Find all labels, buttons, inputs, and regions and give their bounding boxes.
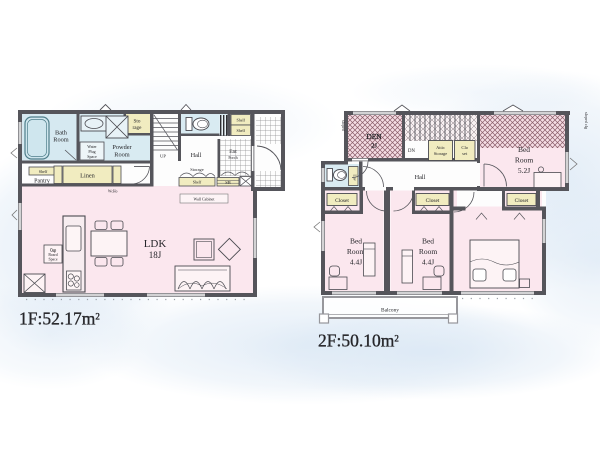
svg-text:2F:50.10m2: 2F:50.10m2 bbox=[318, 331, 399, 351]
svg-text:Shelf: Shelf bbox=[193, 180, 202, 185]
svg-text:Room: Room bbox=[114, 152, 129, 159]
svg-text:sloped clg: sloped clg bbox=[584, 112, 589, 130]
svg-text:Room: Room bbox=[515, 156, 534, 165]
svg-text:rage: rage bbox=[133, 125, 143, 131]
svg-text:Linen: Linen bbox=[80, 173, 96, 180]
svg-text:2J: 2J bbox=[371, 143, 377, 150]
svg-text:Wall Cabinet: Wall Cabinet bbox=[194, 197, 216, 202]
svg-text:SB: SB bbox=[225, 180, 231, 185]
svg-text:Clo: Clo bbox=[461, 145, 468, 150]
svg-text:UP: UP bbox=[160, 154, 166, 159]
svg-text:Bed: Bed bbox=[518, 145, 530, 154]
svg-text:Porch: Porch bbox=[228, 155, 237, 160]
svg-text:DEN: DEN bbox=[366, 132, 382, 141]
svg-text:Room: Room bbox=[53, 137, 68, 144]
svg-text:WcHo: WcHo bbox=[108, 190, 118, 194]
svg-text:Cup: Cup bbox=[50, 249, 56, 253]
svg-text:Room: Room bbox=[347, 247, 366, 256]
svg-text:Hall: Hall bbox=[191, 152, 202, 159]
svg-text:Pantry: Pantry bbox=[34, 179, 50, 185]
svg-text:Powder: Powder bbox=[112, 144, 132, 151]
svg-text:Closet: Closet bbox=[426, 198, 440, 204]
svg-text:4.4J: 4.4J bbox=[422, 258, 434, 267]
svg-text:Bed: Bed bbox=[422, 237, 434, 246]
svg-text:Closet: Closet bbox=[335, 198, 349, 204]
svg-text:Hall: Hall bbox=[415, 174, 426, 181]
svg-text:Room: Room bbox=[419, 247, 438, 256]
svg-text:Bed: Bed bbox=[350, 237, 362, 246]
svg-text:DN: DN bbox=[408, 149, 415, 154]
svg-text:Board: Board bbox=[48, 253, 57, 257]
svg-text:Attic: Attic bbox=[436, 145, 445, 150]
svg-text:Sto: Sto bbox=[134, 119, 141, 125]
svg-text:sloped: sloped bbox=[341, 120, 346, 132]
svg-text:Shelf: Shelf bbox=[236, 118, 245, 123]
svg-text:Balcony: Balcony bbox=[381, 308, 399, 314]
svg-text:4.4J: 4.4J bbox=[350, 258, 362, 267]
svg-text:Shelf: Shelf bbox=[236, 128, 245, 133]
svg-text:Shelf: Shelf bbox=[39, 169, 48, 174]
svg-text:Space: Space bbox=[48, 258, 57, 262]
svg-text:Closet: Closet bbox=[515, 198, 529, 204]
svg-text:1F:52.17m2: 1F:52.17m2 bbox=[19, 309, 100, 329]
svg-text:set: set bbox=[462, 151, 468, 156]
svg-text:18J: 18J bbox=[149, 250, 162, 260]
svg-text:Storage: Storage bbox=[434, 151, 447, 156]
svg-text:Bath: Bath bbox=[55, 130, 68, 137]
svg-text:5.2J: 5.2J bbox=[518, 166, 530, 175]
svg-text:Space: Space bbox=[87, 154, 97, 159]
svg-text:Storage: Storage bbox=[190, 167, 203, 172]
svg-text:LDK: LDK bbox=[144, 238, 167, 250]
